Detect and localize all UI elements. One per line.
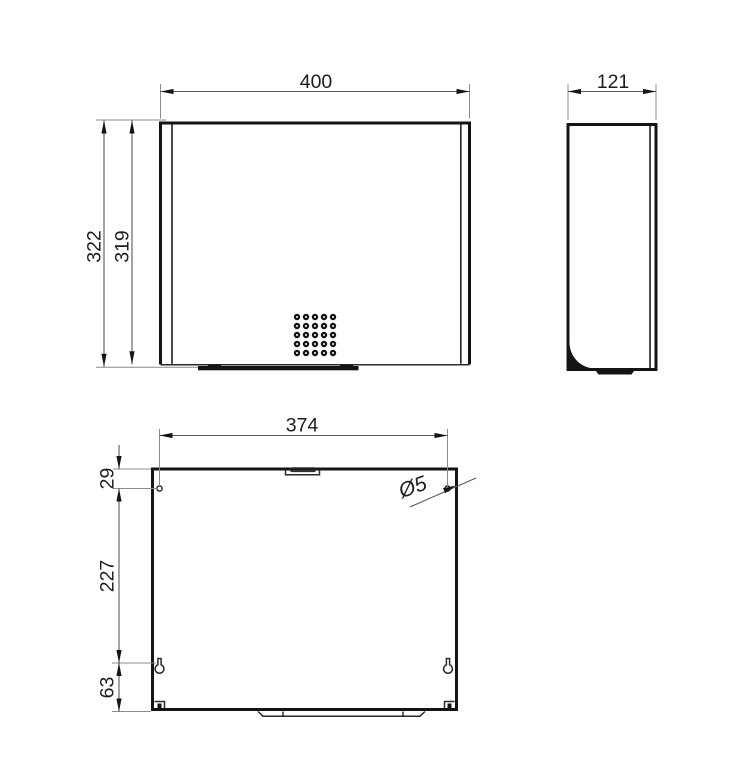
dim-front-width: 400 — [161, 71, 470, 119]
dim-back-hole-to-keyhole-label: 227 — [97, 560, 119, 593]
vent-dot-grid — [294, 314, 336, 356]
back-body-outline — [153, 469, 457, 710]
hole-diameter-label: Ø5 — [395, 472, 430, 504]
back-corner-tab-right — [445, 702, 455, 709]
back-base-tab — [258, 712, 425, 717]
dim-back-vertical-chain: 29 227 63 — [97, 445, 159, 712]
front-base-tray — [198, 365, 359, 371]
dim-front-height-overall-label: 322 — [84, 230, 106, 263]
front-view: 400 322 319 — [84, 71, 470, 370]
back-view: 374 29 227 63 Ø5 — [97, 415, 477, 717]
side-view: 121 — [568, 71, 656, 375]
dim-back-hole-spacing-label: 374 — [286, 415, 319, 437]
dim-back-top-to-hole-label: 29 — [97, 468, 119, 490]
dim-back-keyhole-to-bottom-label: 63 — [97, 677, 119, 699]
keyhole-slot-left — [155, 659, 164, 674]
technical-drawing: 400 322 319 121 — [0, 0, 744, 784]
back-corner-tab-left — [155, 702, 165, 709]
dim-front-height-cover-label: 319 — [112, 230, 134, 263]
dim-side-depth: 121 — [568, 71, 656, 120]
drawing-canvas: 400 322 319 121 — [0, 0, 744, 784]
side-bottom-corner-curve — [569, 342, 595, 369]
side-bottom-nozzle — [595, 370, 635, 375]
dim-front-heights: 322 319 — [84, 120, 199, 367]
dim-side-depth-label: 121 — [597, 71, 630, 93]
hole-diameter-callout: Ø5 — [395, 472, 476, 507]
side-body-outline — [568, 125, 656, 370]
dim-front-width-label: 400 — [300, 71, 333, 93]
keyhole-slot-right — [444, 659, 453, 674]
